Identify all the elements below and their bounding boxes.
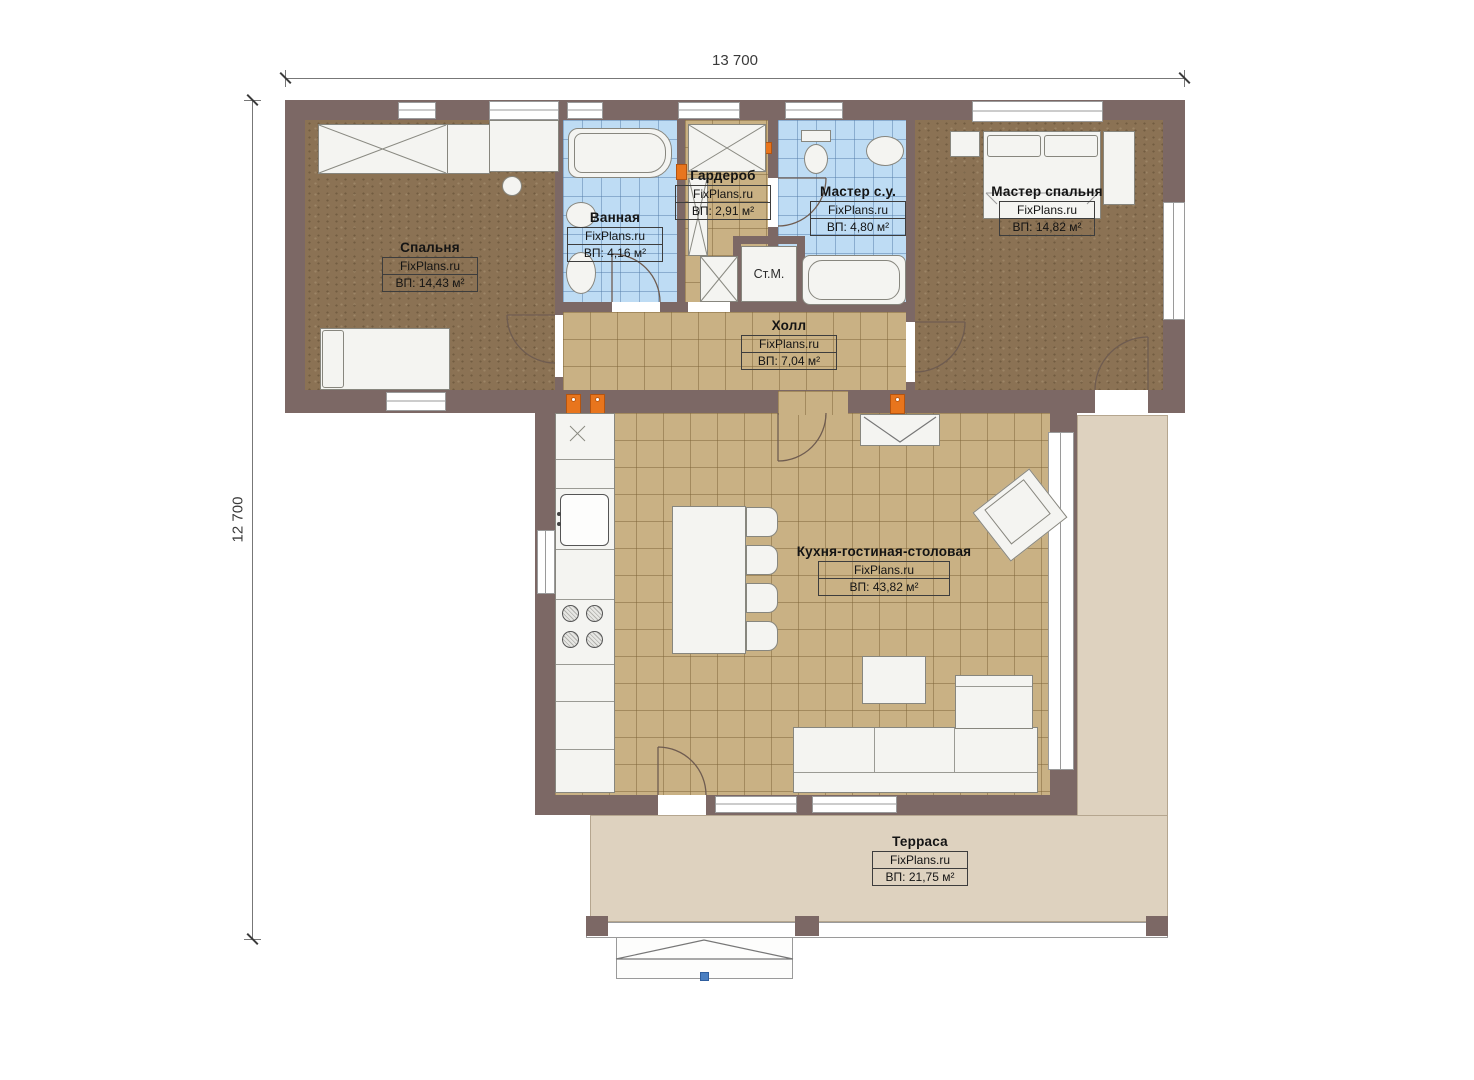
sofa xyxy=(793,727,1038,793)
sofa-seat-divider xyxy=(874,728,875,772)
faucet-dot xyxy=(557,522,561,526)
chaise-line xyxy=(956,686,1032,687)
kitchen-counter xyxy=(555,413,615,793)
room-name: Мастер спальня xyxy=(991,184,1102,199)
room-label-master-bedroom: Мастер спальня FixPlans.ru ВП: 14,82 м² xyxy=(982,184,1112,236)
door-opening xyxy=(658,795,706,815)
room-label-bedroom: Спальня FixPlans.ru ВП: 14,43 м² xyxy=(370,240,490,292)
room-label-hall: Холл FixPlans.ru ВП: 7,04 м² xyxy=(734,318,844,370)
room-label-terrace: Терраса FixPlans.ru ВП: 21,75 м² xyxy=(860,834,980,886)
room-area: ВП: 4,80 м² xyxy=(810,219,906,236)
entrance-marker xyxy=(700,972,709,981)
stove-burner xyxy=(562,631,579,648)
window xyxy=(972,101,1103,122)
dining-table xyxy=(672,506,746,654)
stove-burner xyxy=(586,605,603,622)
window xyxy=(785,102,843,119)
room-brand: FixPlans.ru xyxy=(675,185,771,203)
closet xyxy=(700,256,738,302)
room-area: ВП: 14,43 м² xyxy=(382,275,478,292)
window xyxy=(678,102,740,119)
room-brand: FixPlans.ru xyxy=(818,561,950,579)
dimension-height-line xyxy=(252,100,253,940)
dimension-width-line xyxy=(285,78,1185,79)
room-brand: FixPlans.ru xyxy=(382,257,478,275)
sofa-seat-divider xyxy=(954,728,955,772)
radiator xyxy=(566,394,581,415)
floor-plan-canvas: 13 700 12 700 Ст.М. xyxy=(0,0,1474,1080)
toilet-tank xyxy=(801,130,831,142)
dining-chair xyxy=(746,507,778,537)
bathtub xyxy=(802,255,906,305)
radiator xyxy=(590,394,605,415)
room-name: Спальня xyxy=(400,240,460,255)
bathtub-inner xyxy=(574,133,666,173)
wardrobe-closet xyxy=(318,124,448,174)
room-area: ВП: 2,91 м² xyxy=(675,203,771,220)
window xyxy=(537,530,555,594)
pillow xyxy=(987,135,1041,157)
window xyxy=(489,101,559,120)
door-opening xyxy=(688,302,730,312)
terrace-post xyxy=(795,916,819,936)
window-glass-wall xyxy=(1048,432,1074,770)
coffee-table xyxy=(862,656,926,704)
sofa-back-line xyxy=(794,772,1037,773)
window xyxy=(567,102,603,119)
sink xyxy=(866,136,904,166)
nightstand xyxy=(950,131,980,157)
room-label-bathroom: Ванная FixPlans.ru ВП: 4,16 м² xyxy=(565,210,665,262)
room-area: ВП: 7,04 м² xyxy=(741,353,837,370)
room-brand: FixPlans.ru xyxy=(872,851,968,869)
washing-machine-label: Ст.М. xyxy=(754,267,785,281)
door-opening xyxy=(1095,390,1148,413)
dimension-width-label: 13 700 xyxy=(660,52,810,69)
bed-single xyxy=(320,328,450,390)
terrace-post xyxy=(586,916,608,936)
room-name: Терраса xyxy=(892,834,948,849)
room-name: Кухня-гостиная-столовая xyxy=(797,544,972,559)
fireplace xyxy=(860,414,940,446)
counter-divider xyxy=(556,664,614,665)
dimension-height-label: 12 700 xyxy=(230,485,247,555)
stove-burner xyxy=(562,605,579,622)
window xyxy=(812,796,897,813)
pillow xyxy=(1044,135,1098,157)
room-brand: FixPlans.ru xyxy=(810,201,906,219)
bathtub-inner xyxy=(808,260,900,300)
terrace-post xyxy=(1146,916,1168,936)
closet xyxy=(688,124,766,172)
room-brand: FixPlans.ru xyxy=(741,335,837,353)
vanity-stool xyxy=(502,176,522,196)
faucet-dot xyxy=(557,512,561,516)
bathtub xyxy=(568,128,672,178)
window xyxy=(386,392,446,411)
room-brand: FixPlans.ru xyxy=(999,201,1095,219)
washing-machine: Ст.М. xyxy=(741,246,797,302)
door-opening xyxy=(612,302,660,312)
window xyxy=(398,102,436,119)
counter-divider xyxy=(556,749,614,750)
dining-chair xyxy=(746,583,778,613)
room-area: ВП: 4,16 м² xyxy=(567,245,663,262)
hall-kitchen-passage xyxy=(778,391,848,415)
toilet-bowl xyxy=(804,144,828,174)
stove-burner xyxy=(586,631,603,648)
window xyxy=(715,796,797,813)
room-area: ВП: 43,82 м² xyxy=(818,579,950,596)
room-area: ВП: 14,82 м² xyxy=(999,219,1095,236)
counter-divider xyxy=(556,701,614,702)
closet-shelf xyxy=(447,124,490,174)
window xyxy=(1163,202,1185,320)
door-opening xyxy=(555,315,563,377)
room-label-wardrobe: Гардероб FixPlans.ru ВП: 2,91 м² xyxy=(673,168,773,220)
room-name: Мастер с.у. xyxy=(820,184,896,199)
counter-divider xyxy=(556,488,614,489)
dining-chair xyxy=(746,545,778,575)
radiator xyxy=(890,394,905,414)
pillow xyxy=(322,330,344,388)
room-name: Ванная xyxy=(590,210,640,225)
counter-divider xyxy=(556,459,614,460)
room-label-master-bath: Мастер с.у. FixPlans.ru ВП: 4,80 м² xyxy=(803,184,913,236)
terrace-step-band xyxy=(586,922,1168,938)
room-area: ВП: 21,75 м² xyxy=(872,869,968,886)
counter-divider xyxy=(556,549,614,550)
niche-wall-top xyxy=(733,236,805,244)
dining-chair xyxy=(746,621,778,651)
room-label-kitchen-living: Кухня-гостиная-столовая FixPlans.ru ВП: … xyxy=(789,544,979,596)
room-name: Холл xyxy=(772,318,807,333)
room-brand: FixPlans.ru xyxy=(567,227,663,245)
door-opening xyxy=(906,322,915,382)
counter-divider xyxy=(556,599,614,600)
room-name: Гардероб xyxy=(690,168,755,183)
kitchen-sink xyxy=(560,494,609,546)
vanity-table xyxy=(489,120,559,172)
sofa-chaise xyxy=(955,675,1033,729)
